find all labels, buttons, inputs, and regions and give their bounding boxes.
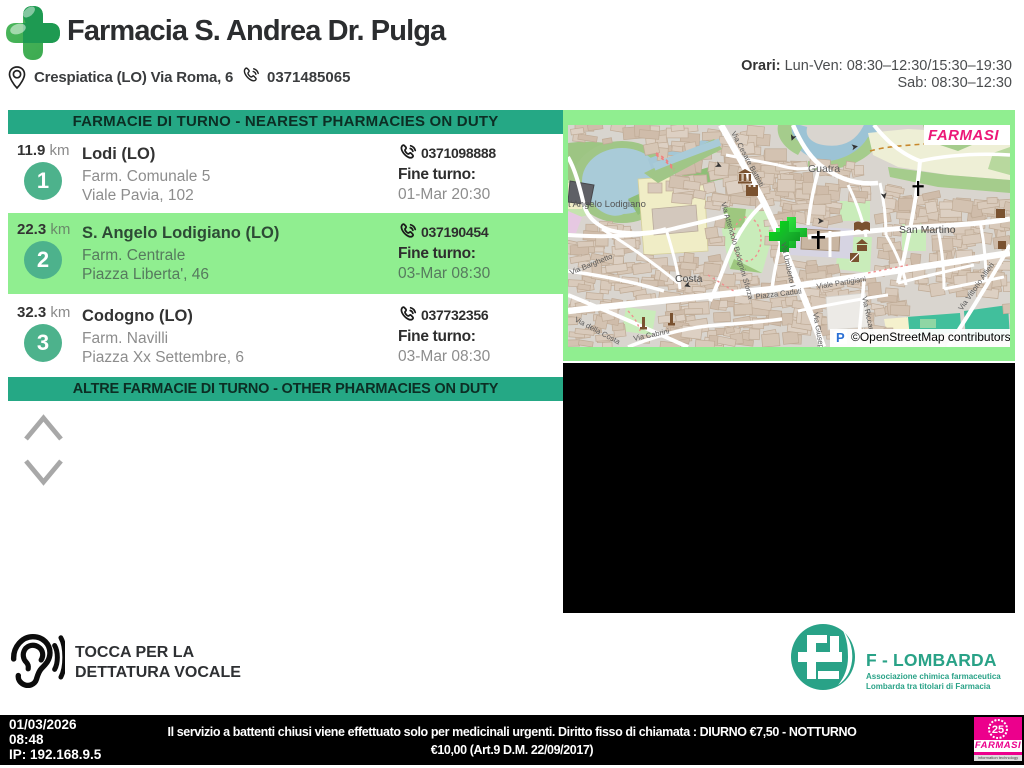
svg-text:FARMASI: FARMASI [928,127,999,144]
svg-text:P: P [836,330,845,345]
svg-text:t'Angelo Lodigiano: t'Angelo Lodigiano [568,199,646,210]
svg-text:San Martino: San Martino [899,224,956,236]
svg-text:25: 25 [992,724,1004,736]
svg-text:©OpenStreetMap contributors: ©OpenStreetMap contributors [851,330,1010,344]
svg-text:Costa: Costa [675,273,703,285]
svg-text:Guatra: Guatra [808,163,840,175]
